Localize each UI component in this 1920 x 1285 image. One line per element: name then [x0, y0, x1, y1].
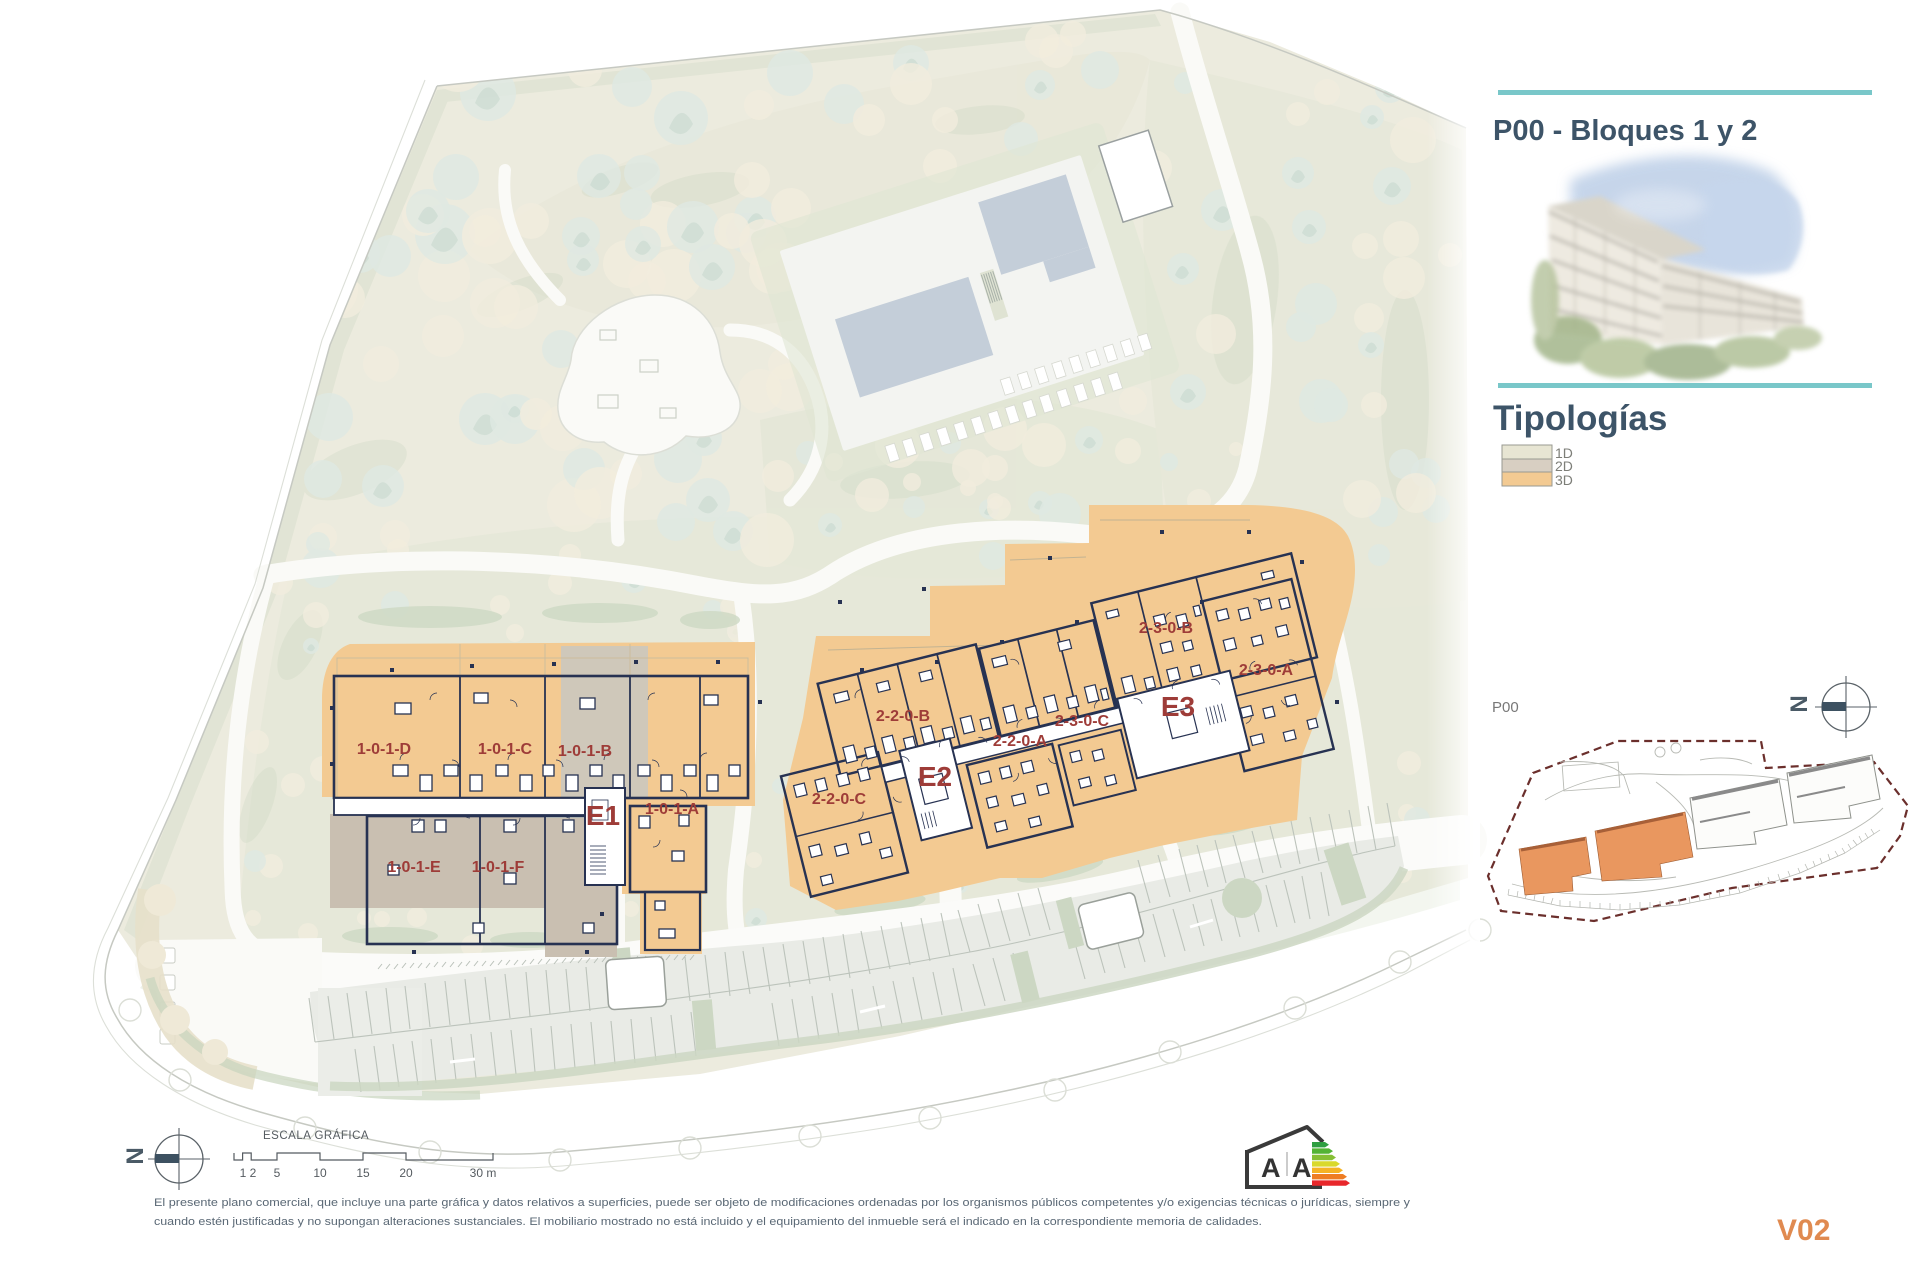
- svg-text:30 m: 30 m: [470, 1166, 497, 1180]
- svg-text:2-2-0-C: 2-2-0-C: [812, 791, 867, 808]
- svg-text:N: N: [122, 1147, 149, 1164]
- svg-text:A: A: [1261, 1153, 1281, 1183]
- svg-text:cuando estén justificadas y no: cuando estén justificadas y no supongan …: [154, 1216, 1262, 1228]
- svg-text:1-0-1-E: 1-0-1-E: [387, 859, 441, 876]
- svg-text:2-2-0-B: 2-2-0-B: [876, 708, 930, 725]
- svg-text:2: 2: [250, 1166, 257, 1180]
- svg-text:20: 20: [399, 1166, 413, 1180]
- svg-text:2-3-0-C: 2-3-0-C: [1055, 713, 1110, 730]
- svg-text:2-3-0-B: 2-3-0-B: [1139, 620, 1193, 637]
- svg-text:1-0-1-B: 1-0-1-B: [558, 743, 612, 760]
- svg-text:1: 1: [240, 1166, 247, 1180]
- svg-text:E2: E2: [918, 761, 952, 792]
- svg-text:N: N: [1786, 695, 1813, 712]
- svg-text:A: A: [1292, 1153, 1312, 1183]
- svg-text:1-0-1-C: 1-0-1-C: [478, 741, 533, 758]
- svg-text:15: 15: [356, 1166, 370, 1180]
- svg-text:3D: 3D: [1555, 472, 1573, 488]
- svg-text:V02: V02: [1777, 1214, 1830, 1247]
- svg-text:P00: P00: [1492, 699, 1519, 716]
- svg-text:2-2-0-A: 2-2-0-A: [993, 733, 1048, 750]
- svg-text:2-3-0-A: 2-3-0-A: [1239, 662, 1294, 679]
- svg-text:E3: E3: [1161, 691, 1195, 722]
- svg-text:1-0-1-A: 1-0-1-A: [645, 801, 700, 818]
- svg-text:P00 - Bloques 1 y 2: P00 - Bloques 1 y 2: [1493, 115, 1757, 147]
- svg-text:E1: E1: [586, 800, 620, 831]
- svg-text:1-0-1-F: 1-0-1-F: [472, 859, 525, 876]
- svg-text:ESCALA GRÁFICA: ESCALA GRÁFICA: [263, 1129, 369, 1142]
- svg-text:5: 5: [274, 1166, 281, 1180]
- svg-text:10: 10: [313, 1166, 327, 1180]
- svg-text:Tipologías: Tipologías: [1493, 399, 1667, 438]
- svg-text:1-0-1-D: 1-0-1-D: [357, 741, 411, 758]
- svg-text:El presente plano comercial, q: El presente plano comercial, que incluye…: [154, 1197, 1410, 1209]
